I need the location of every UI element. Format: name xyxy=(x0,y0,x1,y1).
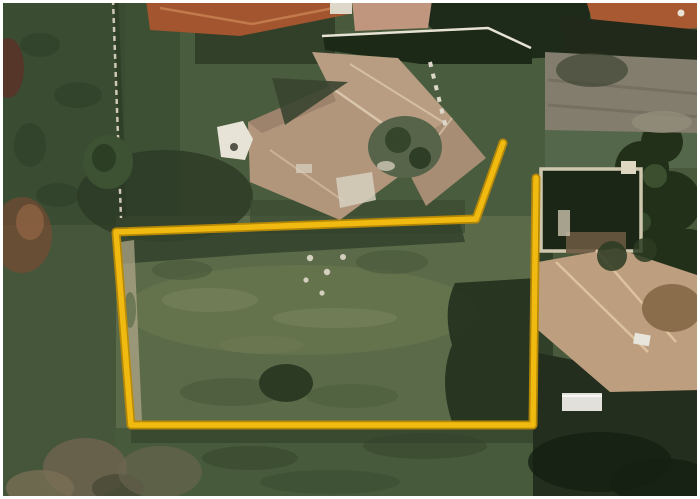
inner-courtyard xyxy=(368,116,442,178)
right-driveway xyxy=(545,52,700,133)
property-aerial-view xyxy=(0,0,700,499)
neighbor-paving-top xyxy=(352,0,432,31)
pool-courtyard-enclosure xyxy=(541,161,641,254)
dirt-patch xyxy=(642,284,700,332)
satellite-photo xyxy=(0,0,700,499)
